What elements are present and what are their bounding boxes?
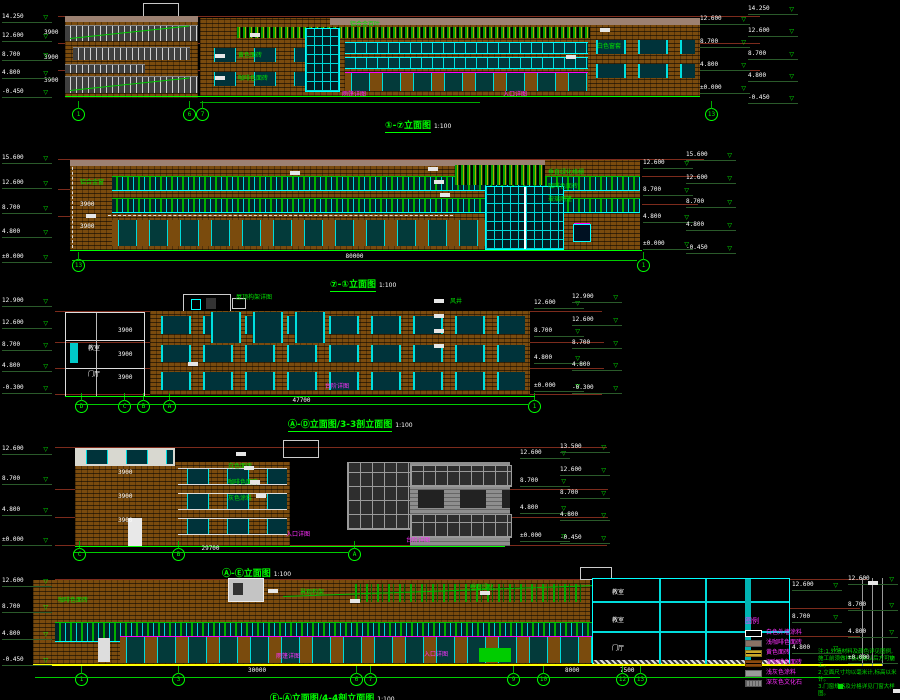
level-triangle-icon: ▽ [727, 176, 732, 182]
caption-title: ⑦-①立面图 [330, 280, 376, 292]
fascia-band [330, 18, 700, 25]
note-line: 3.门窗规格及分格详见门窗大样图。 [818, 684, 898, 698]
caption-scale: 1:100 [274, 571, 291, 578]
parapet-box [143, 3, 179, 17]
level-triangle-icon: ▽ [43, 508, 48, 514]
level-mark: 8.700▽ [748, 51, 798, 60]
dim-tag [256, 494, 266, 498]
level-value: 12.600 [2, 320, 24, 326]
level-triangle-icon: ▽ [43, 632, 48, 638]
level-triangle-icon: ▽ [789, 29, 794, 35]
grid-bubble: 3 [172, 673, 185, 686]
level-value: 12.600 [2, 578, 24, 584]
drawing3-caption: Ⓐ-Ⓓ立面图/3-3剖立面图1:100 [288, 412, 413, 431]
level-mark: -0.450▽ [2, 657, 52, 666]
level-mark: 4.800▽ [748, 73, 798, 82]
level-triangle-icon: ▽ [741, 86, 746, 92]
level-value: 8.700 [2, 604, 20, 610]
roof-door [206, 298, 216, 309]
level-column: 13.500▽12.600▽8.700▽4.800▽-0.450▽ [560, 444, 610, 544]
level-value: 12.600 [848, 576, 870, 582]
white-band [75, 448, 175, 466]
level-mark: 12.600▽ [2, 180, 52, 189]
level-triangle-icon: ▽ [727, 223, 732, 229]
level-mark: -0.300▽ [2, 385, 52, 394]
level-value: -0.300 [2, 385, 24, 391]
dimension-line [200, 102, 480, 103]
dim-tag [250, 33, 260, 37]
level-triangle-icon: ▽ [43, 579, 48, 585]
window-row [590, 64, 695, 78]
level-triangle-icon: ▽ [601, 536, 606, 542]
level-triangle-icon: ▽ [43, 386, 48, 392]
caption-title: ①-⑦立面图 [385, 121, 431, 133]
level-value: ±0.000 [2, 254, 24, 260]
level-triangle-icon: ▽ [789, 52, 794, 58]
level-mark: -0.450▽ [748, 95, 798, 104]
grid-bubble: 1 [72, 108, 85, 121]
brick-wall [75, 466, 175, 546]
level-mark: -0.300▽ [572, 385, 622, 394]
level-mark: ±0.000▽ [848, 655, 898, 664]
level-triangle-icon: ▽ [43, 156, 48, 162]
level-value: 12.600 [700, 16, 722, 22]
curtain-wall [305, 28, 340, 92]
section-outline [65, 312, 145, 397]
dim-tag [268, 589, 278, 593]
dim-tag [215, 76, 225, 80]
tall-window-row [205, 312, 330, 343]
level-column: 12.600▽8.700▽4.800▽±0.000▽ [2, 446, 52, 546]
level-column: 12.900▽12.600▽8.700▽4.800▽-0.300▽ [572, 294, 622, 394]
level-value: 12.600 [686, 175, 708, 181]
grid-bubble: 1 [528, 400, 541, 413]
level-mark: 8.700▽ [2, 604, 52, 613]
level-triangle-icon: ▽ [43, 230, 48, 236]
level-mark: -0.450▽ [560, 535, 610, 544]
canopy-dashed-line [108, 215, 453, 216]
level-value: 8.700 [686, 199, 704, 205]
material-note: 玻璃雨篷 [548, 197, 572, 203]
level-value: 12.600 [2, 33, 24, 39]
window-row [178, 518, 287, 535]
level-triangle-icon: ▽ [43, 53, 48, 59]
level-mark: 4.800▽ [2, 507, 52, 516]
dimension-line [70, 250, 642, 251]
level-value: 8.700 [560, 490, 578, 496]
level-triangle-icon: ▽ [43, 364, 48, 370]
level-column: 12.600▽8.700▽4.800▽-0.450▽ [2, 578, 52, 666]
level-mark: 8.700▽ [2, 205, 52, 214]
window-band [345, 42, 588, 54]
detail-callout: 入口详图 [503, 92, 527, 98]
dim-text: 3900 [118, 328, 132, 334]
level-value: 14.250 [748, 6, 770, 12]
caption-title: Ⓐ-Ⓓ立面图/3-3剖立面图 [288, 420, 392, 432]
parapet-box [283, 440, 319, 458]
material-note: 铝合金百叶 [350, 22, 380, 28]
level-mark: 4.800▽ [560, 512, 610, 521]
level-value: -0.450 [2, 89, 24, 95]
level-value: ±0.000 [700, 85, 722, 91]
level-mark: 4.800▽ [848, 629, 898, 638]
material-note: 咖啡色面砖 [58, 598, 88, 604]
panel-window [233, 583, 243, 595]
level-value: 8.700 [572, 340, 590, 346]
window-band [345, 57, 588, 69]
dim-text: 3900 [80, 202, 94, 208]
caption-scale: 1:100 [377, 696, 394, 700]
dimension-line: 80000 [72, 260, 637, 261]
light-gray-swatch [745, 670, 762, 677]
level-triangle-icon: ▽ [601, 445, 606, 451]
level-value: 14.250 [2, 14, 24, 20]
level-triangle-icon: ▽ [43, 605, 48, 611]
level-triangle-icon: ▽ [727, 246, 732, 252]
level-triangle-icon: ▽ [889, 603, 894, 609]
elevation1-main-wall [200, 18, 700, 96]
dashed-edge-line [72, 162, 74, 248]
section-wall [659, 579, 661, 665]
taupe-swatch [745, 640, 762, 647]
level-mark: -0.450▽ [2, 89, 52, 98]
level-triangle-icon: ▽ [43, 34, 48, 40]
dim-text: 教室 [88, 346, 100, 352]
level-mark: 12.900▽ [2, 298, 52, 307]
level-triangle-icon: ▽ [43, 477, 48, 483]
level-mark: 14.250▽ [748, 6, 798, 15]
level-triangle-icon: ▽ [43, 321, 48, 327]
level-value: 8.700 [700, 39, 718, 45]
level-value: 12.600 [792, 582, 814, 588]
level-value: 4.800 [686, 222, 704, 228]
level-mark: 12.600▽ [2, 33, 52, 42]
section-floor-line [66, 340, 144, 341]
level-mark: 12.600▽ [792, 582, 842, 591]
level-mark: 12.600▽ [2, 446, 52, 455]
level-value: 4.800 [848, 629, 866, 635]
level-triangle-icon: ▽ [833, 583, 838, 589]
level-triangle-icon: ▽ [43, 343, 48, 349]
dimension-line [65, 96, 700, 97]
yellow-brick-swatch [745, 650, 762, 657]
dim-text: 8000 [565, 668, 579, 674]
drawing5-caption: Ⓔ-Ⓐ立面图/4-4剖立面图1:100 [270, 686, 395, 700]
level-value: 4.800 [520, 505, 538, 511]
dim-text: 教室 [612, 590, 624, 596]
level-mark: 8.700▽ [560, 490, 610, 499]
grid-bubble: 13 [705, 108, 718, 121]
elevation4-gray-block [410, 462, 510, 546]
level-mark: ±0.000▽ [2, 537, 52, 546]
level-value: -0.450 [560, 535, 582, 541]
green-planting-band [350, 584, 585, 602]
dim-text: 门厅 [88, 372, 100, 378]
level-value: 12.600 [520, 450, 542, 456]
level-mark: -0.450▽ [686, 245, 736, 254]
elevation4-mid-block [175, 462, 290, 546]
level-value: ±0.000 [534, 383, 556, 389]
level-triangle-icon: ▽ [889, 577, 894, 583]
window-row [77, 450, 173, 464]
dim-tag [434, 299, 444, 303]
level-value: 4.800 [643, 214, 661, 220]
detail-callout: 入口详图 [424, 652, 448, 658]
level-value: -0.450 [2, 657, 24, 663]
level-triangle-icon: ▽ [789, 74, 794, 80]
level-mark: 13.500▽ [560, 444, 610, 453]
level-value: 12.600 [748, 28, 770, 34]
section-floor-line [66, 368, 144, 369]
grid-bubble: 12 [616, 673, 629, 686]
level-triangle-icon: ▽ [43, 299, 48, 305]
storefront-band [112, 220, 492, 246]
level-triangle-icon: ▽ [613, 386, 618, 392]
level-triangle-icon: ▽ [601, 513, 606, 519]
section-wall-line [96, 313, 97, 396]
level-mark: 4.800▽ [572, 362, 622, 371]
level-mark: 4.800▽ [2, 70, 52, 79]
level-triangle-icon: ▽ [43, 447, 48, 453]
level-mark: 8.700▽ [700, 39, 750, 48]
legend-label: 深咖啡色面砖 [766, 660, 802, 666]
level-value: 8.700 [2, 342, 20, 348]
material-note: 白色窗套 [597, 44, 621, 50]
level-mark: 12.600▽ [2, 578, 52, 587]
level-value: 12.600 [572, 317, 594, 323]
level-mark: 15.600▽ [2, 155, 52, 164]
level-triangle-icon: ▽ [741, 63, 746, 69]
level-mark: 12.600▽ [572, 317, 622, 326]
detail-callout: 台阶详图 [406, 538, 430, 544]
window-band [65, 64, 145, 73]
level-triangle-icon: ▽ [613, 295, 618, 301]
level-triangle-icon: ▽ [613, 341, 618, 347]
level-triangle-icon: ▽ [889, 656, 894, 662]
level-value: ±0.000 [643, 241, 665, 247]
grid-bubble: 10 [537, 673, 550, 686]
level-value: 4.800 [572, 362, 590, 368]
storefront-band [120, 636, 595, 663]
level-triangle-icon: ▽ [889, 630, 894, 636]
level-column: 14.250▽12.600▽8.700▽4.800▽-0.450▽ [748, 6, 798, 104]
dim-tag [250, 480, 260, 484]
legend-label: 深灰色文化石 [766, 680, 802, 686]
level-mark: 8.700▽ [2, 476, 52, 485]
dim-tag [600, 28, 610, 32]
window-row [410, 490, 510, 508]
dim-tag [566, 55, 576, 59]
level-mark: 8.700▽ [2, 52, 52, 61]
dimension-value: 29700 [73, 545, 348, 552]
gray-glazing [347, 462, 412, 530]
level-triangle-icon: ▽ [741, 17, 746, 23]
green-marker-square [838, 684, 843, 689]
level-triangle-icon: ▽ [43, 658, 48, 664]
material-note: 垂直绿化格栅 [548, 170, 584, 176]
dim-tag [434, 344, 444, 348]
gray-panel [228, 578, 264, 602]
level-mark: 12.600▽ [2, 320, 52, 329]
section-floor-slab [593, 601, 789, 603]
level-mark: 4.800▽ [2, 229, 52, 238]
level-value: 8.700 [2, 52, 20, 58]
grid-bubble: 7 [364, 673, 377, 686]
level-value: 12.600 [560, 467, 582, 473]
detail-callout: 雨篷详图 [342, 92, 366, 98]
grid-bubble: 6 [350, 673, 363, 686]
material-note: 咖啡色面砖 [238, 76, 268, 82]
dim-tag [350, 599, 360, 603]
caption-scale: 1:100 [434, 123, 451, 130]
level-column: 15.600▽12.600▽8.700▽4.800▽-0.450▽ [686, 152, 736, 254]
louver-band [237, 27, 590, 38]
window-row [155, 345, 525, 362]
level-value: 4.800 [534, 355, 552, 361]
section-wall [705, 579, 707, 665]
dim-tag [215, 54, 225, 58]
level-mark: 8.700▽ [572, 340, 622, 349]
window-band [73, 47, 190, 60]
dim-text: 3900 [118, 375, 132, 381]
dim-tag [440, 193, 450, 197]
legend-label: 浅灰色涂料 [766, 670, 796, 676]
level-column: 12.600▽8.700▽4.800▽±0.000▽ [848, 576, 898, 664]
level-triangle-icon: ▽ [613, 363, 618, 369]
window-trim [574, 223, 590, 224]
grid-bubble: 13 [634, 673, 647, 686]
glazing-band [410, 514, 512, 538]
level-value: 4.800 [2, 363, 20, 369]
level-value: 4.800 [560, 512, 578, 518]
green-patch [479, 648, 511, 662]
level-value: -0.450 [686, 245, 708, 251]
dark-gray-swatch [745, 680, 762, 687]
dim-text: 门厅 [612, 646, 624, 652]
level-value: 4.800 [700, 62, 718, 68]
level-triangle-icon: ▽ [741, 40, 746, 46]
small-window [191, 299, 201, 310]
dim-tag [290, 171, 300, 175]
door [98, 638, 110, 662]
caption-scale: 1:100 [379, 282, 396, 289]
detail-callout: 雨篷详图 [276, 654, 300, 660]
level-mark: 8.700▽ [848, 602, 898, 611]
storefront-band [345, 72, 588, 91]
dim-text: 3900 [80, 224, 94, 230]
level-value: 4.800 [792, 645, 810, 651]
level-triangle-icon: ▽ [833, 646, 838, 652]
louver-block [455, 165, 545, 185]
level-triangle-icon: ▽ [43, 206, 48, 212]
material-note: 铝合金窗 [80, 180, 104, 186]
level-column: 15.600▽12.600▽8.700▽4.800▽±0.000▽ [2, 155, 52, 263]
drawing2-caption: ⑦-①立面图1:100 [330, 272, 396, 291]
level-mark: 12.600▽ [700, 16, 750, 25]
dim-text: 3900 [118, 518, 132, 524]
level-mark: 4.800▽ [686, 222, 736, 231]
dimension-line: 47700 [75, 404, 528, 405]
level-value: 12.600 [2, 446, 24, 452]
level-mark: 12.600▽ [560, 467, 610, 476]
level-value: 8.700 [848, 602, 866, 608]
dim-tag [188, 362, 198, 366]
dim-tag [434, 180, 444, 184]
dim-text: 3900 [118, 352, 132, 358]
dim-text: 教室 [612, 618, 624, 624]
level-mark: 4.800▽ [792, 645, 842, 654]
level-mark: 12.900▽ [572, 294, 622, 303]
level-mark: 12.600▽ [748, 28, 798, 37]
level-value: -0.300 [572, 385, 594, 391]
level-value: 13.500 [560, 444, 582, 450]
detail-callout: 台阶详图 [325, 384, 349, 390]
brown-brick-swatch [745, 660, 762, 667]
dim-tag [480, 591, 490, 595]
elevation1-left-wing [65, 16, 198, 98]
level-value: 12.600 [534, 300, 556, 306]
white-swatch [745, 630, 762, 637]
dim-tag [428, 167, 438, 171]
fascia-band [65, 16, 198, 22]
level-value: ±0.000 [848, 655, 870, 661]
level-value: 12.600 [2, 180, 24, 186]
level-triangle-icon: ▽ [43, 181, 48, 187]
level-triangle-icon: ▽ [43, 90, 48, 96]
level-triangle-icon: ▽ [43, 15, 48, 21]
section-glазing [70, 343, 78, 363]
dimension-value: 47700 [75, 397, 528, 404]
level-value: 8.700 [534, 328, 552, 334]
level-mark: 8.700▽ [686, 199, 736, 208]
level-mark: 4.800▽ [700, 62, 750, 71]
level-mark: 12.600▽ [686, 175, 736, 184]
level-value: 12.900 [2, 298, 24, 304]
level-value: 4.800 [2, 70, 20, 76]
caption-scale: 1:100 [395, 422, 412, 429]
level-triangle-icon: ▽ [613, 318, 618, 324]
legend-label: 黄色面砖 [766, 650, 790, 656]
level-value: 8.700 [2, 476, 20, 482]
level-mark: 8.700▽ [2, 342, 52, 351]
level-value: 4.800 [2, 631, 20, 637]
grid-bubble: A [348, 548, 361, 561]
level-value: -0.450 [748, 95, 770, 101]
level-triangle-icon: ▽ [833, 615, 838, 621]
level-mark: 8.700▽ [792, 614, 842, 623]
detail-callout: 入口详图 [286, 532, 310, 538]
level-triangle-icon: ▽ [43, 71, 48, 77]
dim-text: 30000 [248, 668, 266, 674]
level-value: 8.700 [792, 614, 810, 620]
level-mark: 4.800▽ [2, 363, 52, 372]
level-value: 8.700 [2, 205, 20, 211]
dim-tag [434, 314, 444, 318]
level-value: 15.600 [2, 155, 24, 161]
material-note: 景观构架 [300, 590, 324, 596]
glazing-band [410, 465, 512, 487]
level-value: ±0.000 [2, 537, 24, 543]
level-mark: ±0.000▽ [700, 85, 750, 94]
dimension-line [35, 677, 840, 678]
caption-title: Ⓔ-Ⓐ立面图/4-4剖立面图 [270, 694, 374, 700]
level-value: 12.900 [572, 294, 594, 300]
grid-bubble: 1 [637, 259, 650, 272]
small-window [573, 224, 591, 242]
material-note: 风井 [450, 299, 462, 305]
level-value: 8.700 [520, 478, 538, 484]
material-note: 黄色面砖 [238, 53, 262, 59]
